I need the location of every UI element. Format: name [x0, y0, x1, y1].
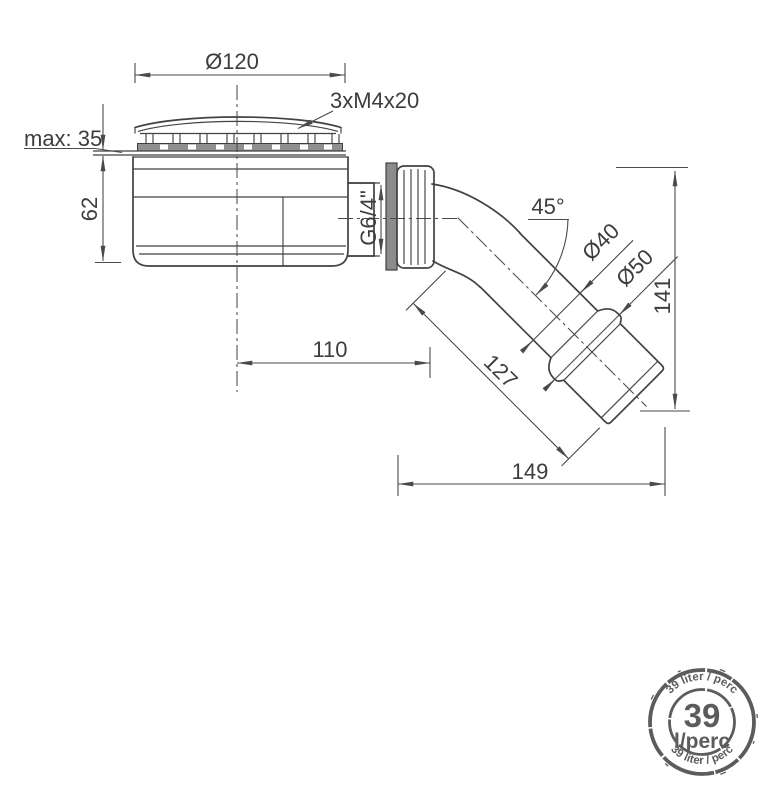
badge-value: 39 [684, 697, 721, 734]
seal-washer [386, 163, 397, 270]
dim-max-thickness: max: 35 [24, 126, 102, 151]
technical-drawing-canvas: 127 Ø120 3xM4x20 max: 35 62 G6/4" 45° Ø [0, 0, 775, 793]
technical-drawing-page: 127 Ø120 3xM4x20 max: 35 62 G6/4" 45° Ø [0, 0, 775, 793]
dim-horizontal-offset: 110 [312, 337, 347, 362]
dim-screws: 3xM4x20 [330, 88, 419, 113]
dim-total-height: 141 [650, 278, 675, 315]
canvas-background [0, 0, 775, 793]
dim-top-diameter: Ø120 [205, 49, 259, 74]
dim-thread-size: G6/4" [356, 190, 381, 246]
dim-group-thread: G6/4" [356, 185, 381, 254]
clamp-band [138, 144, 343, 152]
lock-nut [397, 166, 434, 268]
dim-total-length: 149 [512, 459, 549, 484]
dim-body-height: 62 [77, 197, 102, 221]
dim-elbow-angle: 45° [531, 194, 564, 219]
